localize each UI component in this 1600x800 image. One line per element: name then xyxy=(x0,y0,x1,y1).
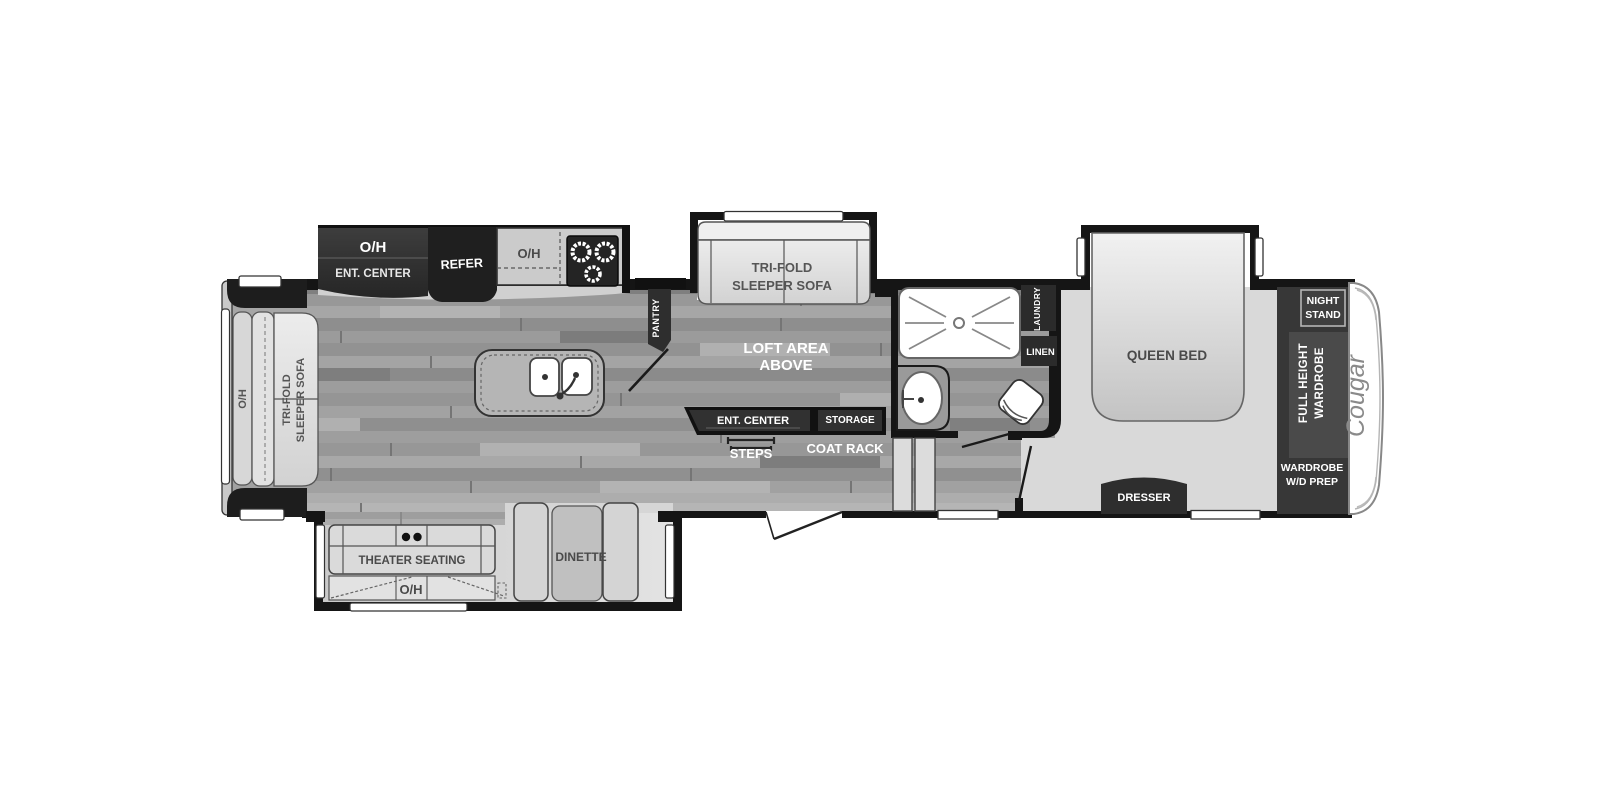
svg-text:THEATER SEATING: THEATER SEATING xyxy=(359,555,466,567)
svg-text:FULL HEIGHT: FULL HEIGHT xyxy=(1298,343,1310,423)
svg-text:PANTRY: PANTRY xyxy=(651,299,661,338)
svg-text:Cougar: Cougar xyxy=(1342,353,1370,437)
svg-text:STEPS: STEPS xyxy=(730,446,773,461)
svg-text:LINEN: LINEN xyxy=(1026,347,1055,358)
svg-text:REFER: REFER xyxy=(440,256,483,272)
svg-text:STAND: STAND xyxy=(1305,309,1341,321)
svg-text:NIGHT: NIGHT xyxy=(1307,295,1340,307)
svg-text:DRESSER: DRESSER xyxy=(1117,492,1170,504)
svg-text:WARDROBE: WARDROBE xyxy=(1314,347,1326,419)
svg-text:QUEEN BED: QUEEN BED xyxy=(1127,348,1208,363)
svg-text:STORAGE: STORAGE xyxy=(825,415,875,426)
svg-text:DINETTE: DINETTE xyxy=(555,550,606,564)
svg-text:ENT. CENTER: ENT. CENTER xyxy=(717,415,789,427)
svg-text:ENT. CENTER: ENT. CENTER xyxy=(335,268,411,280)
svg-text:ABOVE: ABOVE xyxy=(759,357,812,374)
svg-text:W/D PREP: W/D PREP xyxy=(1286,476,1338,488)
svg-text:COAT RACK: COAT RACK xyxy=(806,441,884,456)
svg-text:TRI-FOLD: TRI-FOLD xyxy=(281,374,293,425)
svg-text:TRI-FOLD: TRI-FOLD xyxy=(752,260,813,275)
svg-text:O/H: O/H xyxy=(360,239,387,256)
svg-text:O/H: O/H xyxy=(517,246,540,261)
svg-text:O/H: O/H xyxy=(237,389,249,409)
svg-text:LAUNDRY: LAUNDRY xyxy=(1032,287,1042,331)
svg-text:SLEEPER SOFA: SLEEPER SOFA xyxy=(295,358,307,442)
svg-text:WARDROBE: WARDROBE xyxy=(1281,462,1343,474)
svg-text:LOFT AREA: LOFT AREA xyxy=(743,340,828,357)
svg-text:SLEEPER SOFA: SLEEPER SOFA xyxy=(732,278,832,293)
svg-text:O/H: O/H xyxy=(399,582,422,597)
